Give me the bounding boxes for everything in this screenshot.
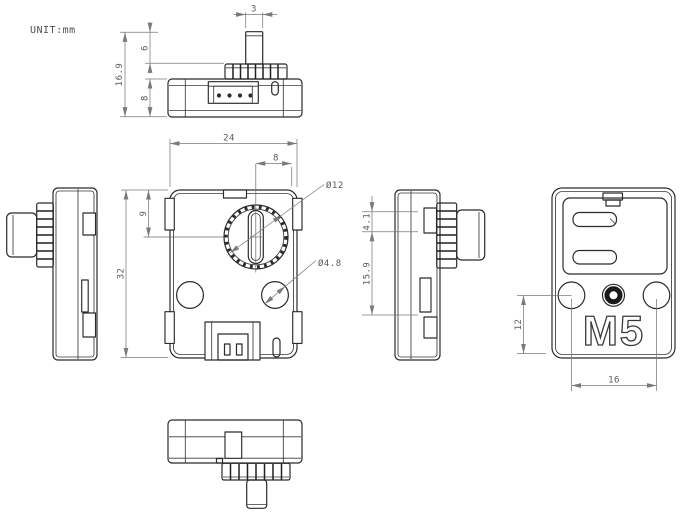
bottom-edge-notch: [217, 459, 223, 464]
side-clip: [293, 198, 302, 230]
side-slot: [420, 278, 431, 312]
side-clip: [83, 213, 96, 235]
dim-knob-offset: 8: [273, 154, 279, 164]
knob-shaft-top: [246, 32, 263, 64]
knob-gear-left: [37, 203, 54, 267]
dim-total-height: 16.9: [115, 63, 125, 87]
top-view: [168, 32, 302, 117]
pin-dot: [227, 93, 231, 97]
unit-label: UNIT:mm: [30, 25, 76, 36]
bottom-connector-block: [225, 432, 242, 458]
grove-connector-top: [208, 82, 258, 104]
side-slot: [82, 280, 89, 312]
knob-shaft-bottom: [247, 480, 267, 508]
dim-hole-diameter: Ø4.8: [318, 258, 342, 269]
side-clip: [424, 208, 437, 233]
mechanical-drawing: 3 16.9 6 8: [0, 0, 686, 517]
dim-knob-top-offset: 9: [139, 211, 149, 217]
left-side-view: [7, 188, 97, 360]
knob-gear-top: [225, 64, 287, 79]
dim-knob-diameter: Ø12: [326, 180, 344, 191]
knob-shaft-right: [457, 210, 485, 260]
side-clip: [424, 317, 437, 338]
top-side-slot: [272, 82, 279, 95]
back-top-tab: [603, 193, 623, 200]
dim-body-width: 24: [223, 134, 235, 144]
knob-gear-bottom: [222, 463, 290, 480]
front-top-tab: [224, 190, 247, 198]
side-clip: [293, 312, 302, 344]
pin-dot: [217, 93, 221, 97]
dim-body-thickness: 8: [141, 95, 151, 101]
knob-shaft-left: [7, 213, 37, 257]
back-top-tab-inner: [606, 200, 620, 206]
pin-dot: [238, 93, 242, 97]
back-panel: [563, 198, 667, 274]
pin-dot: [248, 93, 252, 97]
bottom-view: [168, 420, 302, 508]
back-slot-upper: [573, 213, 617, 227]
drawing-canvas: 3 16.9 6 8: [0, 0, 686, 517]
m5-logo: M5: [583, 307, 645, 354]
mounting-hole-left: [177, 282, 204, 309]
side-clip: [83, 313, 96, 337]
dim-shaft-height: 6: [141, 45, 151, 51]
grove-connector-front: [205, 322, 260, 360]
side-clip: [165, 312, 174, 344]
dim-shaft-width: 3: [251, 5, 257, 15]
right-side-view-dimensions: 4.1 15.9: [362, 196, 418, 315]
back-slot-lower: [573, 251, 617, 265]
side-clip: [165, 198, 174, 230]
dim-body-height: 32: [117, 268, 127, 280]
dim-center-height: 15.9: [363, 262, 373, 286]
shaft-bushing: [603, 284, 625, 306]
dim-hole-to-bottom: 12: [514, 319, 524, 331]
dim-hole-spacing: 16: [608, 376, 620, 386]
dim-shaft-offset: 4.1: [363, 213, 373, 231]
right-side-view: [395, 190, 485, 360]
